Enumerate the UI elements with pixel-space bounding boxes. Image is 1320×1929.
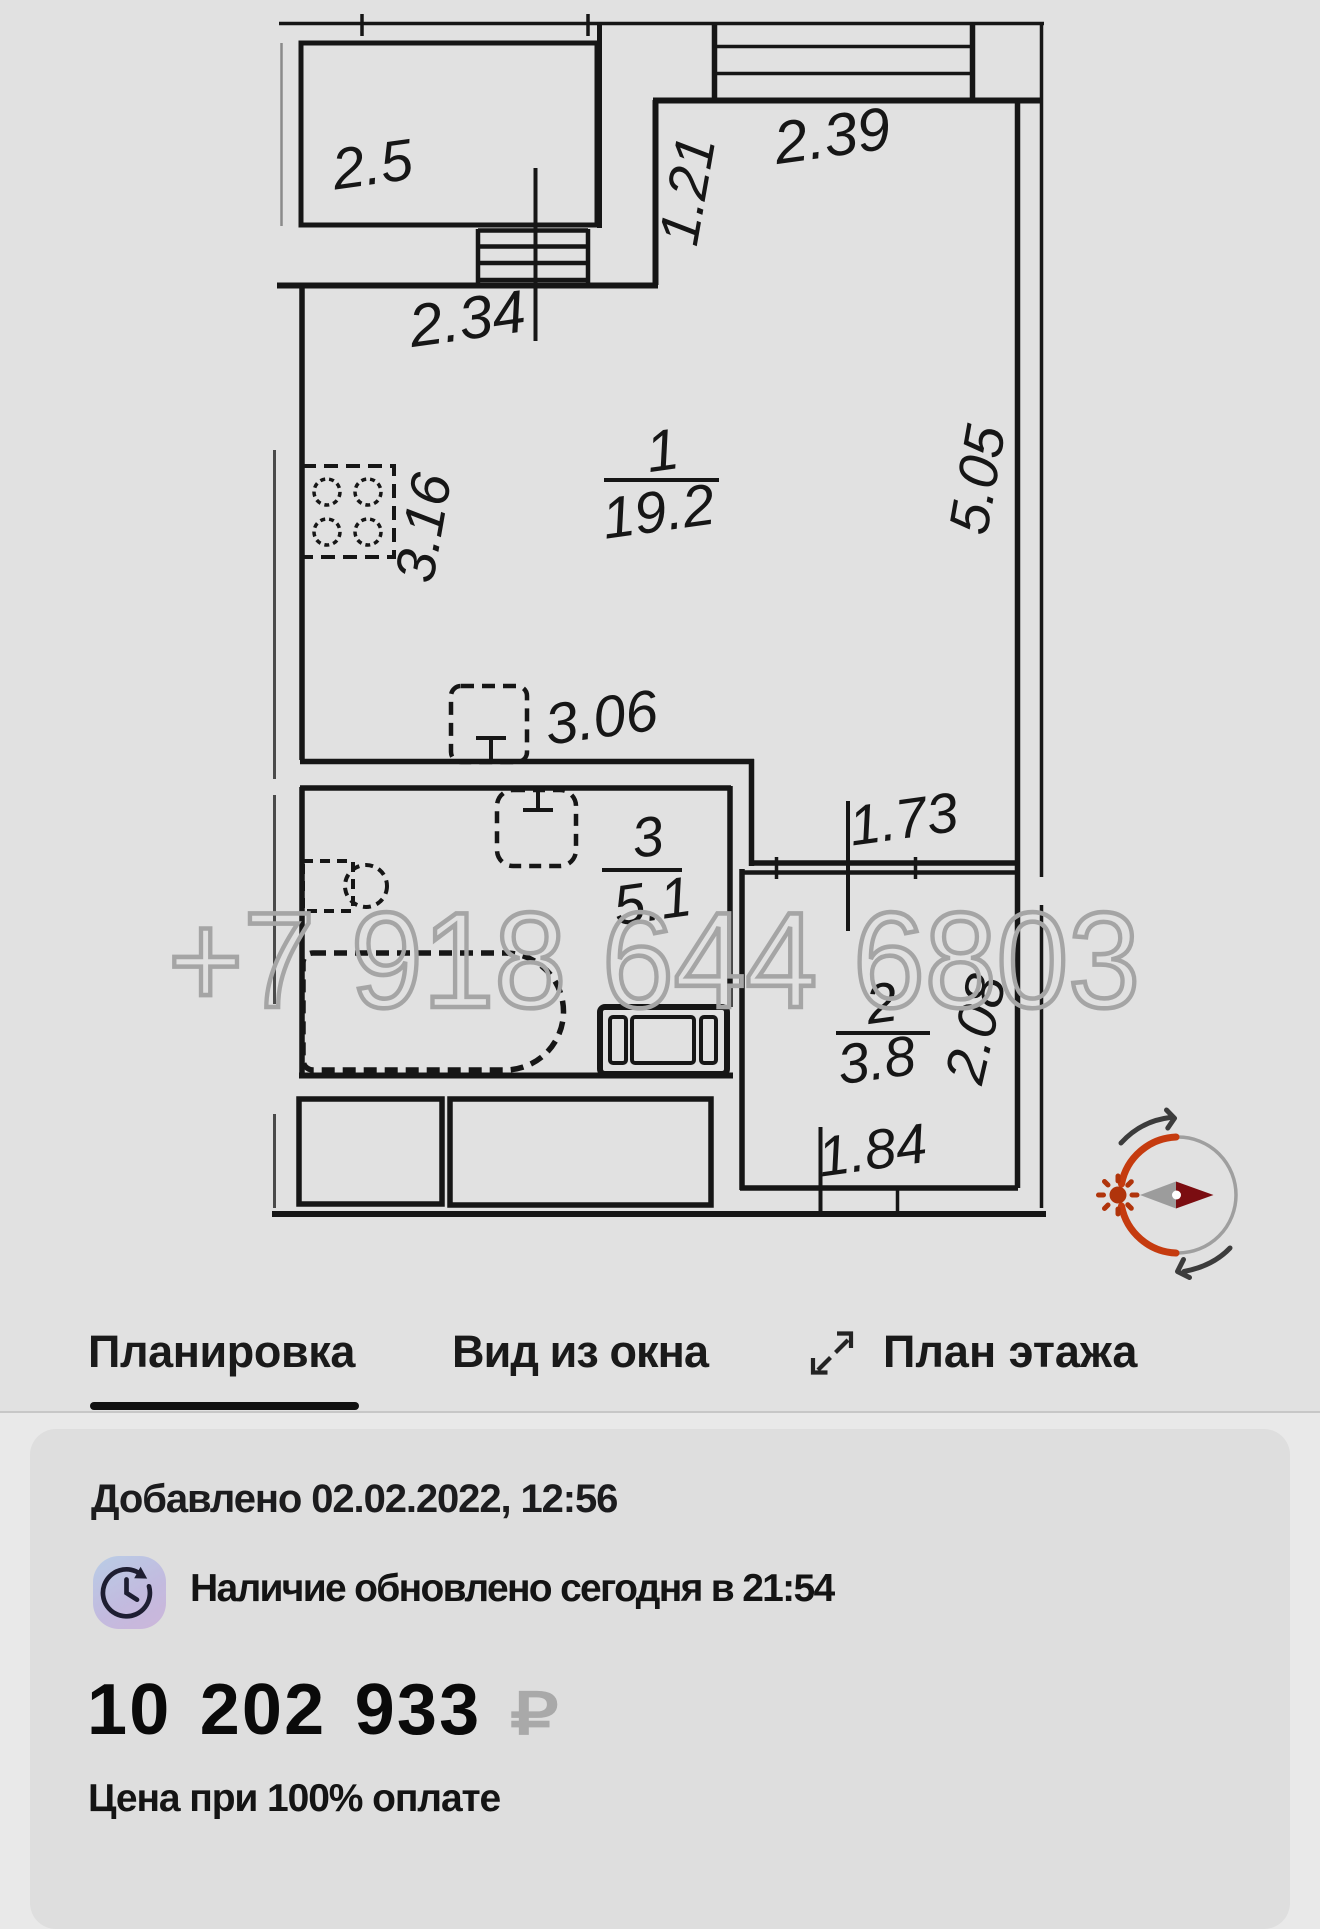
svg-text:5.05: 5.05 — [936, 420, 1017, 539]
svg-text:1.73: 1.73 — [845, 780, 962, 858]
svg-text:+7 918 644 6803: +7 918 644 6803 — [168, 884, 1140, 1036]
svg-text:2.34: 2.34 — [404, 277, 530, 360]
svg-text:1.84: 1.84 — [814, 1111, 931, 1189]
svg-text:1: 1 — [642, 416, 683, 485]
svg-text:3.06: 3.06 — [541, 678, 663, 758]
svg-text:2.5: 2.5 — [327, 127, 418, 203]
svg-text:2.39: 2.39 — [769, 94, 895, 177]
svg-text:19.2: 19.2 — [598, 472, 719, 552]
svg-text:3: 3 — [627, 803, 667, 870]
